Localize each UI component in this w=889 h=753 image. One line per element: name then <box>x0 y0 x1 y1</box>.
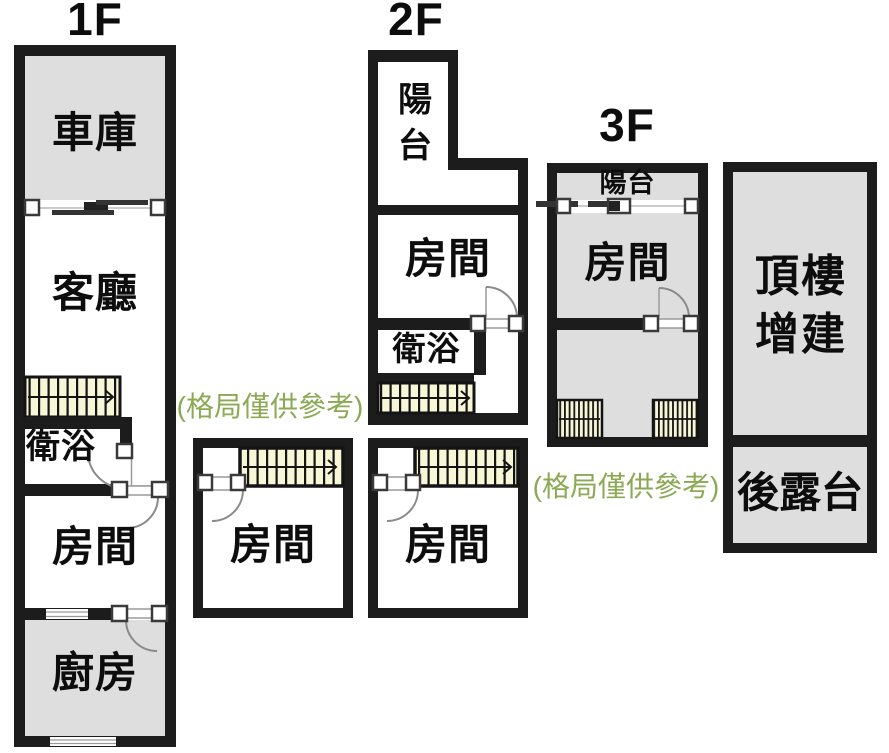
door-jamb <box>112 606 127 621</box>
garage-label: 車庫 <box>25 112 165 154</box>
door-jamb <box>509 316 523 331</box>
door-leaf-upper <box>96 200 148 205</box>
stair-1f <box>25 377 120 417</box>
door-jamb <box>471 316 485 331</box>
sliding-door-balcony-3f <box>536 199 698 213</box>
bathroom-label-1f: 衛浴 <box>16 430 106 464</box>
door-jamb <box>557 199 570 213</box>
kitchen-label: 廚房 <box>25 652 165 694</box>
door-leaf <box>485 319 509 328</box>
door-jamb <box>152 606 167 621</box>
door-leaf-block <box>609 201 620 211</box>
door-jamb <box>151 200 165 215</box>
stair-1f-rear <box>240 448 343 486</box>
layout-disclaimer-right: (格局僅供參考) <box>524 472 728 503</box>
wall-segment <box>733 435 867 447</box>
door-leaf-lower <box>588 201 610 207</box>
balcony-label-2f: 陽台 <box>396 78 434 170</box>
wall-segment <box>378 318 474 330</box>
sliding-door-garage <box>25 200 165 216</box>
door-leaf-lower <box>52 210 114 215</box>
door-jamb <box>644 316 658 331</box>
door-jamb <box>117 444 132 458</box>
door-jamb <box>112 482 127 497</box>
wall-segment <box>14 484 115 496</box>
floor-label-3f: 3F <box>577 102 677 148</box>
wall-segment <box>474 330 486 375</box>
unit-3f <box>536 163 708 447</box>
floor-label-2f: 2F <box>366 0 466 42</box>
rooftop-addition-label: 頂樓增建 <box>744 248 858 364</box>
door-leaf <box>658 319 684 328</box>
door-jamb <box>406 475 420 490</box>
door-jamb <box>198 475 212 490</box>
window-bedroom-1f <box>46 609 88 619</box>
bedroom-label-1f: 房間 <box>25 526 165 568</box>
door-leaf <box>126 609 154 618</box>
door-jamb <box>231 475 245 490</box>
bedroom-label-3f: 房間 <box>557 242 698 284</box>
floor-label-1f: 1F <box>45 0 145 42</box>
stair-3f-right <box>653 400 698 438</box>
wall-segment <box>120 417 132 446</box>
door-leaf <box>126 486 154 495</box>
door-jamb <box>25 200 39 215</box>
stair-2f <box>378 383 474 413</box>
door-jamb <box>152 482 168 497</box>
wall-segment <box>557 318 647 330</box>
bedroom-label-1f-rear: 房間 <box>203 524 343 566</box>
bathroom-label-2f: 衛浴 <box>378 332 475 365</box>
door-leaf <box>386 477 408 490</box>
bedroom-label-2f-rear: 房間 <box>378 524 518 566</box>
door-jamb <box>685 199 698 213</box>
door-jamb <box>684 316 698 331</box>
floor-plan: 1F 車庫 客廳 衛浴 房間 廚房 (格局僅供參考) 房間 2F 陽台 房間 衛… <box>0 0 889 753</box>
window-kitchen-1f <box>50 737 116 746</box>
rear-terrace-label: 後露台 <box>727 472 873 514</box>
stair-2f-rear <box>415 448 518 486</box>
door-leaf <box>211 477 233 490</box>
stair-3f-left <box>557 400 602 438</box>
balcony-label-3f: 陽台 <box>557 170 698 197</box>
layout-disclaimer-left: (格局僅供參考) <box>166 392 374 423</box>
bedroom-label-2f: 房間 <box>378 238 518 280</box>
wall-segment <box>378 205 518 215</box>
window-glass <box>50 737 116 746</box>
door-jamb <box>373 475 387 490</box>
living-room-label: 客廳 <box>25 272 165 314</box>
window-glass <box>46 609 88 619</box>
